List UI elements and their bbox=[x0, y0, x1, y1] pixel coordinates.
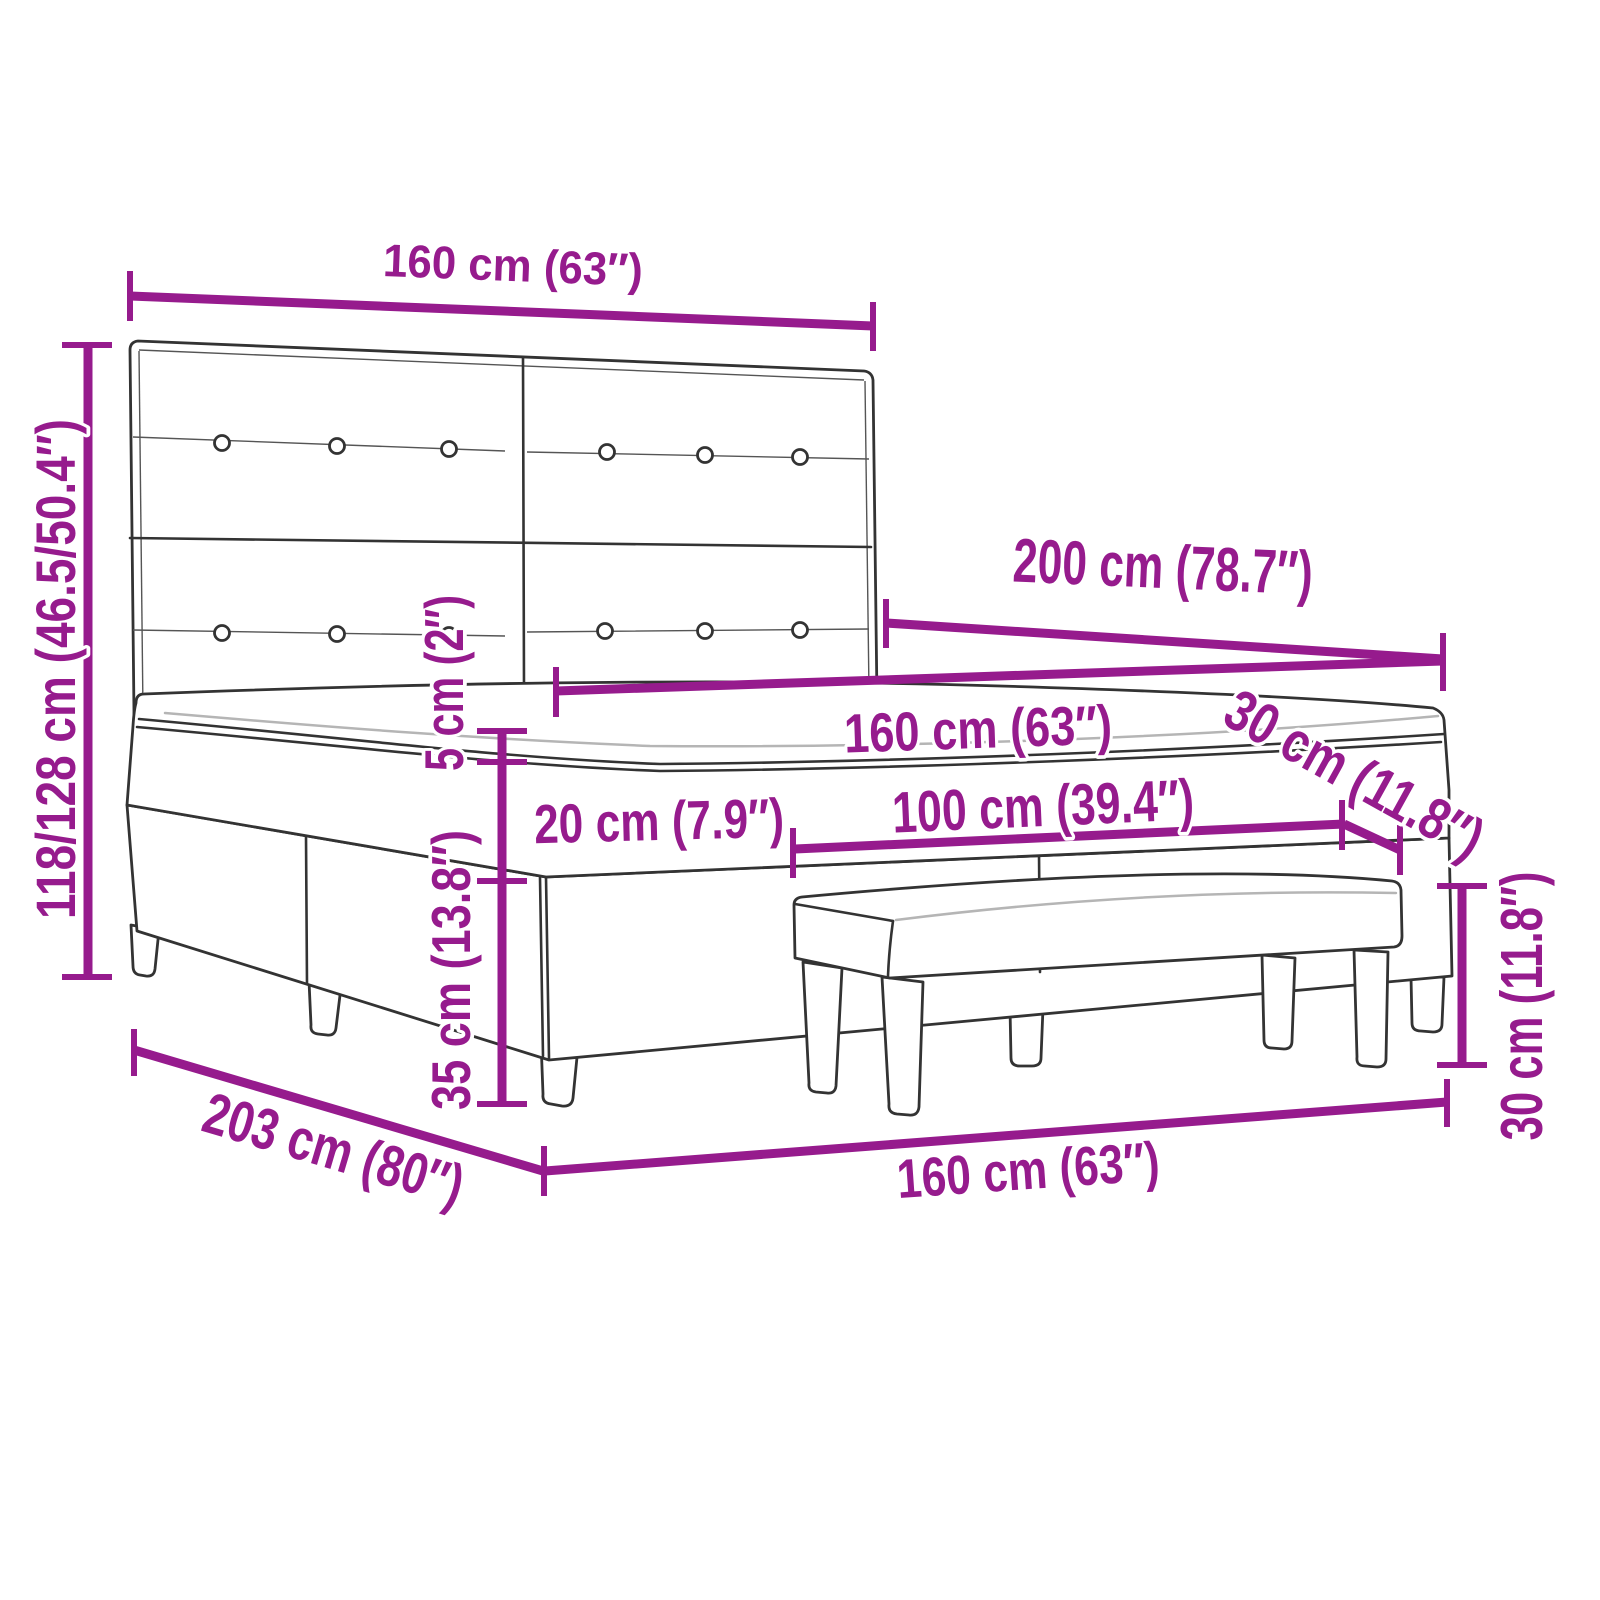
svg-text:35 cm (13.8″): 35 cm (13.8″) bbox=[420, 830, 482, 1110]
svg-text:200 cm (78.7″): 200 cm (78.7″) bbox=[1012, 526, 1315, 608]
svg-text:5 cm (2″): 5 cm (2″) bbox=[413, 595, 475, 771]
svg-text:100 cm (39.4″): 100 cm (39.4″) bbox=[891, 767, 1196, 845]
svg-text:20 cm (7.9″): 20 cm (7.9″) bbox=[533, 787, 785, 856]
svg-text:160 cm (63″): 160 cm (63″) bbox=[843, 693, 1113, 764]
svg-text:30 cm (11.8″): 30 cm (11.8″) bbox=[1489, 872, 1555, 1141]
svg-text:118/128 cm (46.5/50.4″): 118/128 cm (46.5/50.4″) bbox=[24, 419, 87, 919]
svg-text:160 cm (63″): 160 cm (63″) bbox=[382, 234, 644, 296]
